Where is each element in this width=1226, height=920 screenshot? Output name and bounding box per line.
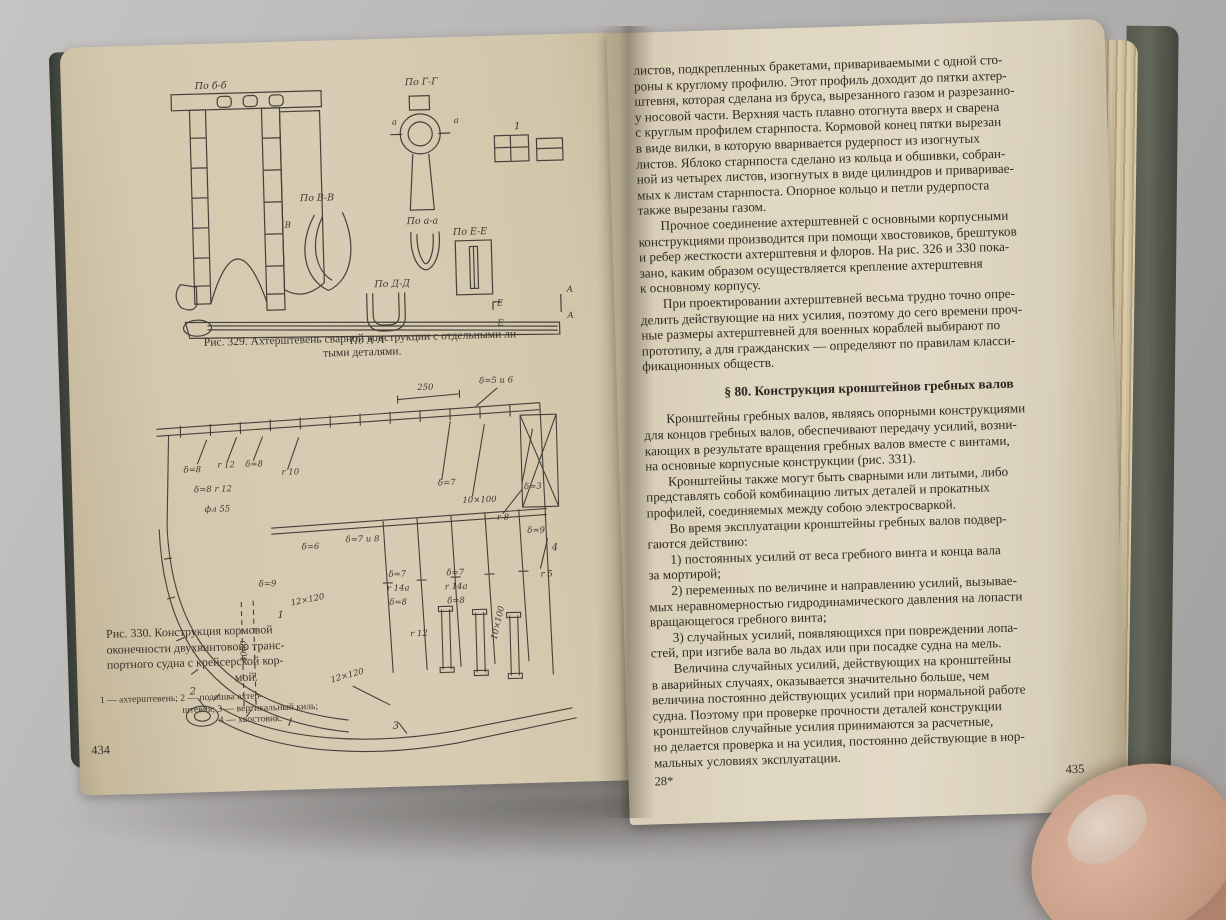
section-label: По В-В <box>299 192 335 204</box>
part-number: 4 <box>551 542 559 553</box>
dim-label: δ=7 <box>438 478 457 489</box>
dim-label: δ=7 <box>446 568 465 579</box>
body-paragraph: Прочное соединение ахтерштевней с основн… <box>638 205 1092 296</box>
photo-scene: По б-б По Г-Г По В-В По а-а По Е-Е По Д-… <box>0 0 1226 920</box>
signature-mark: 28* <box>654 774 673 790</box>
dim-label: 250 <box>416 383 434 393</box>
left-page: По б-б По Г-Г По В-В По а-а По Е-Е По Д-… <box>60 32 637 795</box>
part-number: 1 <box>514 121 521 132</box>
section-label: По Г-Г <box>404 76 439 88</box>
dim-label: 12×120 <box>290 592 326 609</box>
right-page: листов, подкрепленных бракетами, привари… <box>606 19 1127 825</box>
dim-label: δ=5 и 6 <box>479 375 514 386</box>
dim-label: δ=8 <box>389 597 408 608</box>
dim-label: r 14а <box>387 583 410 594</box>
section-heading: § 80. Конструкция кронштейнов гребных ва… <box>643 373 1095 402</box>
dim-label: δ=9 <box>527 526 546 537</box>
body-paragraph: При проектировании ахтерштевней весьма т… <box>640 283 1094 374</box>
section-label: По Е-Е <box>452 226 487 238</box>
dim-label: r 10 <box>281 467 299 478</box>
dim-label: Е <box>496 299 504 309</box>
body-paragraph: Величина случайных усилий, действующих н… <box>651 648 1106 771</box>
dim-label: δ=9 <box>259 579 278 590</box>
dim-label: δ=3 <box>524 482 542 492</box>
dim-label: фл 55 <box>204 504 230 515</box>
dim-label: δ=6 <box>302 542 321 553</box>
dim-label: δ=8 <box>183 465 202 476</box>
dim-label: r 12 <box>410 629 428 639</box>
dim-label: r 5 <box>540 569 552 579</box>
dim-label: r 14а <box>445 582 468 593</box>
part-number: 1 <box>277 610 284 621</box>
dim-label: δ=8 <box>447 596 466 607</box>
dim-label: δ=8 <box>245 459 264 470</box>
dim-label: r 8 <box>497 513 510 523</box>
fig330-caption: Рис. 330. Конструкция кормовойоконечност… <box>106 619 386 689</box>
dim-label: А <box>566 311 574 321</box>
section-label: По Д-Д <box>373 278 410 290</box>
dim-label: δ=8 r 12 <box>194 484 232 495</box>
dim-label: а <box>454 116 459 126</box>
dim-label: r 12 <box>217 460 235 470</box>
dim-label: А <box>565 285 573 295</box>
dim-label: В <box>284 221 292 231</box>
page-number-right: 435 <box>1065 762 1084 778</box>
section-label: По б-б <box>194 80 227 92</box>
part-number: 3 <box>393 721 400 732</box>
fig329-drawing: По б-б По Г-Г По В-В По а-а По Е-Е По Д-… <box>161 68 580 351</box>
body-text-column: листов, подкрепленных бракетами, привари… <box>633 49 1106 770</box>
body-paragraph: листов, подкрепленных бракетами, привари… <box>633 49 1089 218</box>
dim-label: 10×100 <box>462 495 497 506</box>
page-number-left: 434 <box>91 743 110 759</box>
dim-label: δ=7 и 8 <box>345 534 380 545</box>
dim-label: а <box>392 118 397 128</box>
dim-label: δ=7 <box>388 569 407 580</box>
section-label: По а-а <box>406 215 439 227</box>
